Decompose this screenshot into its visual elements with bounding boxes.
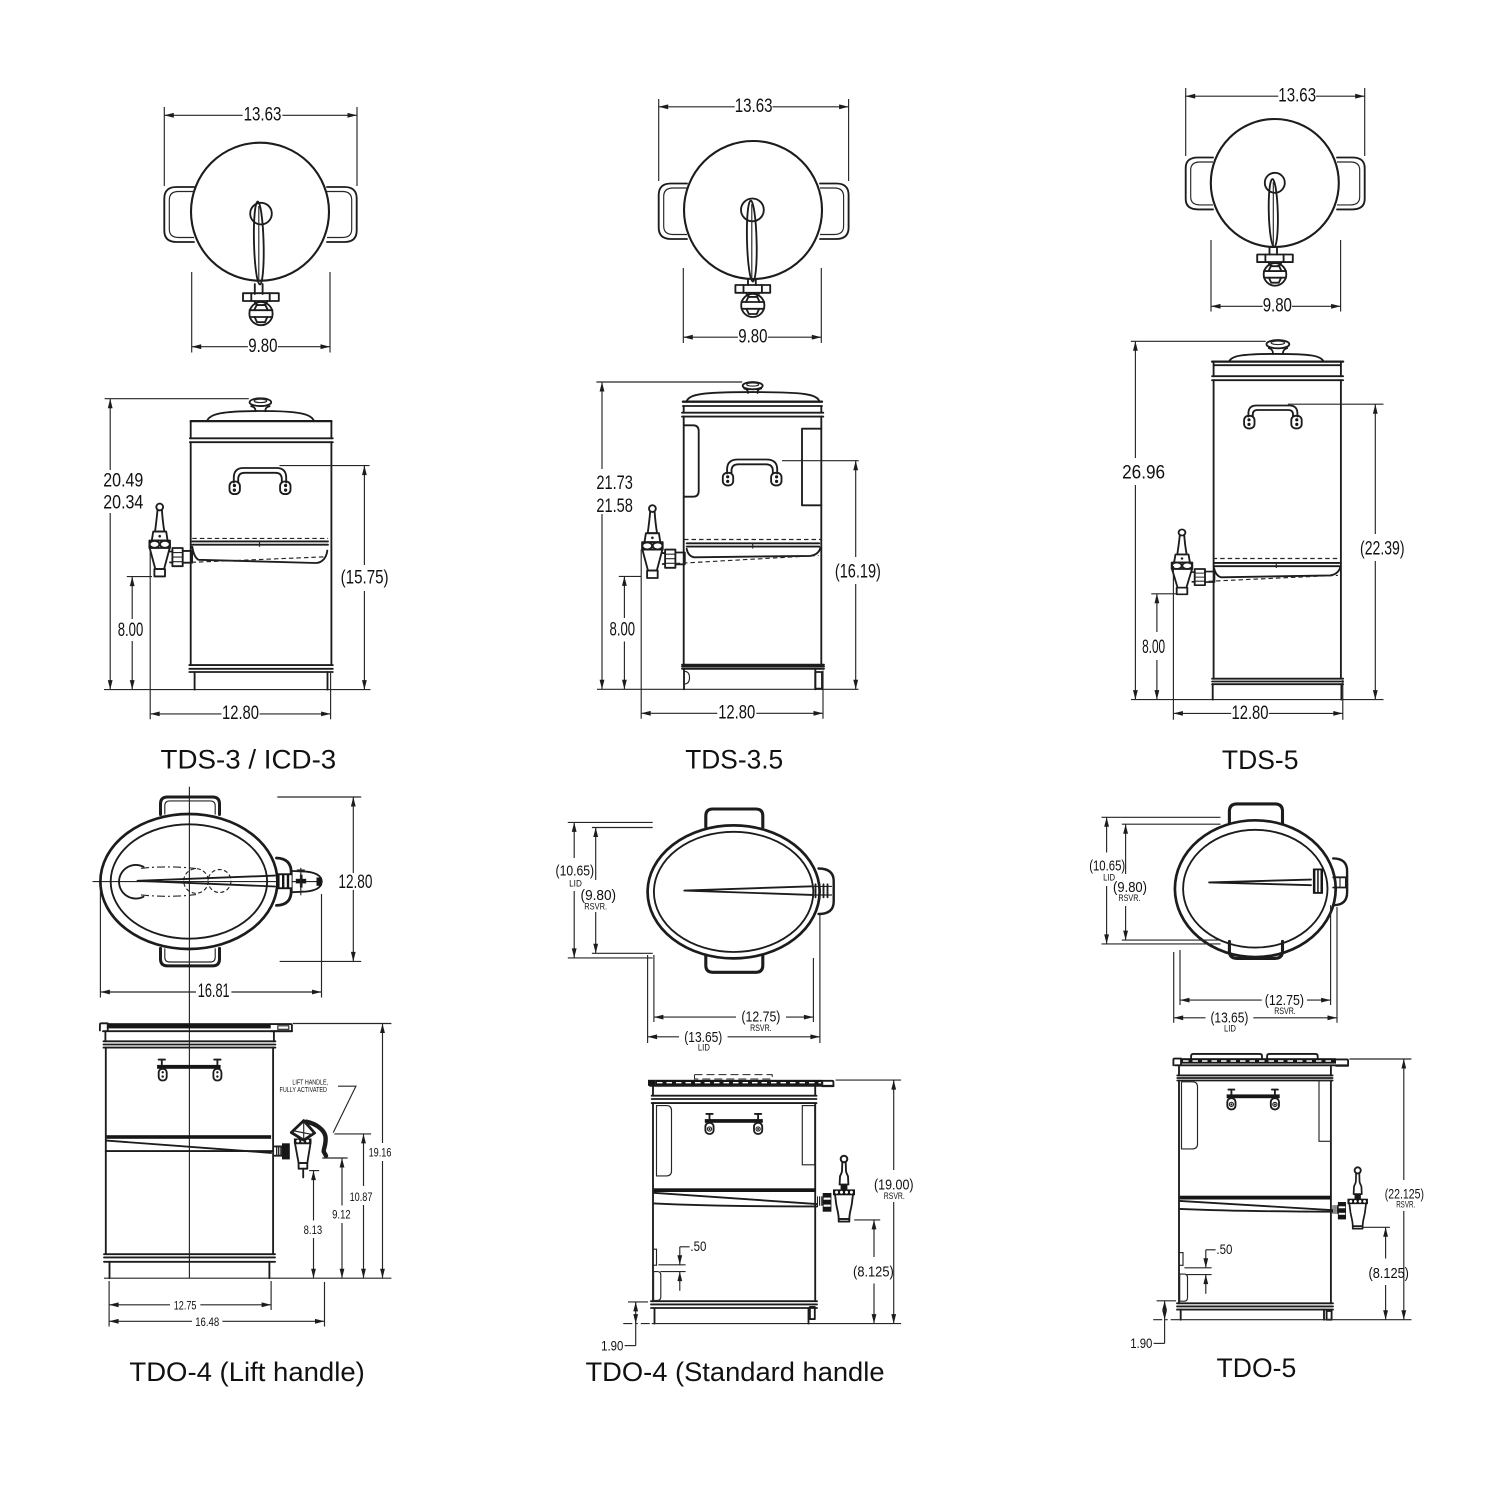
svg-text:8.00: 8.00 bbox=[610, 620, 636, 641]
svg-text:19.16: 19.16 bbox=[369, 1146, 392, 1160]
svg-text:RSVR.: RSVR. bbox=[1274, 1006, 1296, 1016]
svg-text:(22.39): (22.39) bbox=[1360, 539, 1405, 560]
svg-text:(8.125): (8.125) bbox=[1368, 1265, 1409, 1282]
svg-text:RSVR.: RSVR. bbox=[750, 1023, 772, 1033]
svg-text:.50: .50 bbox=[1216, 1241, 1232, 1257]
svg-text:20.49: 20.49 bbox=[103, 470, 143, 491]
svg-text:9.80: 9.80 bbox=[248, 336, 277, 357]
svg-text:12.80: 12.80 bbox=[222, 703, 259, 724]
svg-text:12.75: 12.75 bbox=[174, 1298, 197, 1312]
svg-text:TDO-4 (Standard handle: TDO-4 (Standard handle bbox=[586, 1357, 885, 1387]
svg-text:(10.65): (10.65) bbox=[556, 863, 595, 880]
svg-text:1.90: 1.90 bbox=[601, 1337, 623, 1353]
svg-text:TDS-5: TDS-5 bbox=[1222, 745, 1299, 775]
svg-text:9.12: 9.12 bbox=[332, 1208, 351, 1222]
svg-text:(16.19): (16.19) bbox=[835, 562, 881, 583]
svg-text:TDO-5: TDO-5 bbox=[1217, 1353, 1297, 1383]
svg-text:13.63: 13.63 bbox=[244, 105, 282, 126]
svg-text:RSVR.: RSVR. bbox=[1396, 1200, 1415, 1210]
svg-text:8.00: 8.00 bbox=[118, 620, 144, 641]
svg-text:12.80: 12.80 bbox=[338, 872, 372, 893]
svg-text:21.73: 21.73 bbox=[596, 473, 633, 494]
svg-text:9.80: 9.80 bbox=[738, 326, 767, 347]
svg-text:FULLY ACTIVATED: FULLY ACTIVATED bbox=[280, 1087, 328, 1094]
svg-text:.50: .50 bbox=[690, 1238, 706, 1254]
svg-text:(15.75): (15.75) bbox=[341, 568, 389, 589]
svg-text:12.80: 12.80 bbox=[718, 703, 755, 724]
svg-text:(8.125): (8.125) bbox=[853, 1264, 894, 1281]
svg-text:8.13: 8.13 bbox=[304, 1223, 323, 1237]
svg-text:RSVR.: RSVR. bbox=[884, 1191, 905, 1201]
svg-text:TDO-4 (Lift handle): TDO-4 (Lift handle) bbox=[129, 1357, 364, 1387]
svg-text:16.81: 16.81 bbox=[198, 981, 230, 1002]
svg-text:TDS-3 / ICD-3: TDS-3 / ICD-3 bbox=[161, 745, 337, 775]
svg-text:9.80: 9.80 bbox=[1263, 296, 1292, 317]
svg-text:LID: LID bbox=[1224, 1023, 1236, 1034]
svg-text:RSVR.: RSVR. bbox=[1118, 893, 1140, 903]
svg-text:8.00: 8.00 bbox=[1142, 637, 1165, 658]
svg-text:RSVR.: RSVR. bbox=[584, 902, 607, 912]
svg-text:13.63: 13.63 bbox=[1278, 86, 1316, 107]
svg-text:16.48: 16.48 bbox=[195, 1315, 219, 1329]
svg-text:1.90: 1.90 bbox=[1130, 1335, 1152, 1351]
svg-text:TDS-3.5: TDS-3.5 bbox=[685, 744, 783, 774]
svg-text:13.63: 13.63 bbox=[735, 96, 773, 117]
svg-text:LIFT HANDLE,: LIFT HANDLE, bbox=[292, 1079, 328, 1086]
svg-text:10.87: 10.87 bbox=[350, 1190, 373, 1204]
svg-text:20.34: 20.34 bbox=[103, 492, 143, 513]
svg-text:26.96: 26.96 bbox=[1122, 463, 1165, 484]
svg-text:LID: LID bbox=[698, 1043, 710, 1054]
svg-text:12.80: 12.80 bbox=[1232, 703, 1269, 724]
svg-text:21.58: 21.58 bbox=[596, 496, 633, 517]
